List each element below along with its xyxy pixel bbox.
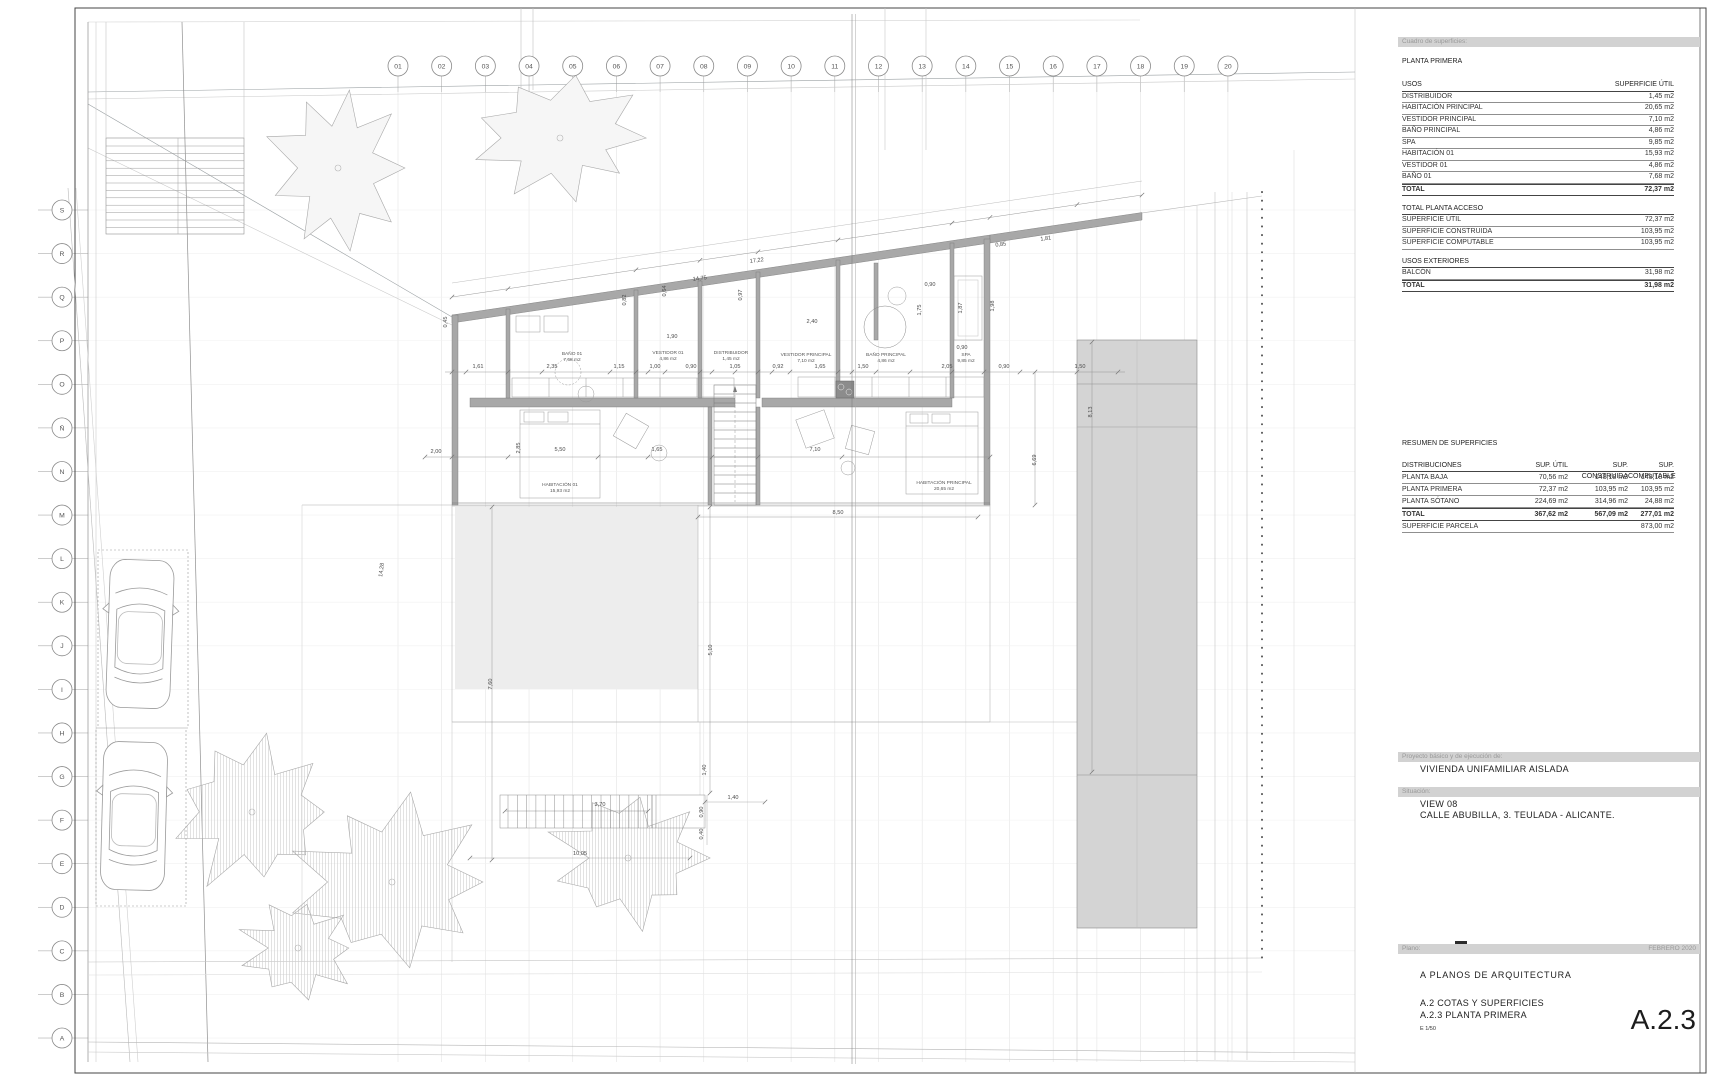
dim-label: 1,50 xyxy=(1075,364,1086,370)
row-label: TOTAL xyxy=(1402,185,1425,196)
room-area: 7,10 m2 xyxy=(797,358,815,364)
grid-row-label: I xyxy=(61,687,63,694)
project-name: VIVIENDA UNIFAMILIAR AISLADA xyxy=(1420,764,1569,774)
dim-label: 8,50 xyxy=(833,510,844,516)
table-row: BAÑO PRINCIPAL4,86 m2 xyxy=(1402,126,1674,138)
grid-column-label: 10 xyxy=(787,63,795,70)
grid-column-label: 06 xyxy=(613,63,621,70)
building-plan: BAÑO 01 7,68 m2 VESTIDOR 01 4,86 m2 DIST… xyxy=(452,213,1142,507)
grid-row-label: Ñ xyxy=(60,423,65,432)
table-cell: 24,88 m2 xyxy=(1628,496,1674,507)
grid-column-label: 20 xyxy=(1224,63,1232,70)
tree-icon xyxy=(476,75,646,202)
dim-label: 1,81 xyxy=(1040,235,1052,242)
table-cell: 72,37 m2 xyxy=(1520,484,1568,495)
room-label: SPA xyxy=(961,352,971,358)
superficie-col-header: SUPERFICIE ÚTIL xyxy=(1615,80,1674,91)
room-label: DISTRIBUIDOR xyxy=(714,350,749,356)
dim-label: 0,45 xyxy=(443,317,449,328)
dim-label: 0,40 xyxy=(699,829,705,840)
table-cell xyxy=(1568,521,1628,532)
dim-label: 10,05 xyxy=(573,851,587,857)
dim-label: 5,50 xyxy=(555,447,566,453)
row-label: VESTIDOR 01 xyxy=(1402,161,1448,172)
dim-label: 0,90 xyxy=(957,345,968,351)
planta-primera-title: PLANTA PRIMERA xyxy=(1402,58,1462,65)
row-value: 7,68 m2 xyxy=(1649,172,1674,183)
acceso-table-title: TOTAL PLANTA ACCESO xyxy=(1402,203,1674,215)
table-row: DISTRIBUIDOR1,45 m2 xyxy=(1402,92,1674,104)
sheet-title: A.2.3 PLANTA PRIMERA xyxy=(1420,1010,1527,1020)
room-label: BAÑO 01 xyxy=(562,350,583,357)
dim-label: 0,90 xyxy=(925,282,936,288)
grid-column-label: 17 xyxy=(1093,63,1101,70)
tree-icon xyxy=(239,904,348,1000)
dim-label: 1,98 xyxy=(990,301,996,312)
table-cell: 367,62 m2 xyxy=(1520,509,1568,520)
row-label: TOTAL xyxy=(1402,281,1425,292)
cuadro-superficies-label: Cuadro de superficies: xyxy=(1402,38,1467,45)
section-cut-line xyxy=(852,14,856,1064)
cuadro-superficies-bar: Cuadro de superficies: xyxy=(1398,37,1700,47)
grid-row-label: J xyxy=(60,643,63,650)
pool-strip xyxy=(1077,206,1197,1062)
row-value: 9,85 m2 xyxy=(1649,138,1674,149)
room-label: VESTIDOR PRINCIPAL xyxy=(781,352,832,358)
dim-label: 0,64 xyxy=(662,286,668,297)
grid-row-label: R xyxy=(60,251,65,258)
balcony-band xyxy=(452,235,990,323)
grid-column-label: 09 xyxy=(744,63,752,70)
row-value: 4,86 m2 xyxy=(1649,126,1674,137)
room-area: 4,86 m2 xyxy=(877,358,895,364)
dim-label: 0,85 xyxy=(995,241,1007,248)
table-row: SUPERFICIE PARCELA873,00 m2 xyxy=(1402,521,1674,533)
plano-date: FEBRERO 2020 xyxy=(1648,944,1696,954)
grid-row-label: D xyxy=(60,905,65,912)
dim-label: 5,10 xyxy=(708,645,714,656)
exteriores-table: USOS EXTERIORES BALCÓN31,98 m2TOTAL31,98… xyxy=(1402,256,1674,292)
grid-column-label: 18 xyxy=(1137,63,1145,70)
scale-label: E 1/50 xyxy=(1420,1026,1436,1032)
dim-label: 2,05 xyxy=(942,364,953,370)
sheet-code: A.2.3 xyxy=(1631,1004,1696,1036)
dim-label: 0,97 xyxy=(738,290,744,301)
dim-label: 2,35 xyxy=(547,364,558,370)
table-row: TOTAL367,62 m2567,09 m2277,01 m2 xyxy=(1402,508,1674,521)
table-cell: 224,69 m2 xyxy=(1520,496,1568,507)
dim-label: 6,69 xyxy=(1032,455,1038,466)
table-cell: 103,95 m2 xyxy=(1628,484,1674,495)
grid-row-label: C xyxy=(60,948,65,955)
row-label: VESTIDOR PRINCIPAL xyxy=(1402,115,1476,126)
dim-label: 8,13 xyxy=(1088,407,1094,418)
grid-row-label: O xyxy=(59,382,64,389)
row-value: 72,37 m2 xyxy=(1644,185,1674,196)
grid-column-label: 03 xyxy=(482,63,490,70)
grid-column-label: 05 xyxy=(569,63,577,70)
grid-row-label: G xyxy=(59,774,64,781)
usos-col-header: USOS xyxy=(1402,80,1422,91)
grid-column-label: 15 xyxy=(1006,63,1014,70)
grid-column-label: 04 xyxy=(525,63,533,70)
dim-label: 1,65 xyxy=(815,364,826,370)
grid-row-label: N xyxy=(60,469,65,476)
parking-area xyxy=(94,550,188,906)
grid-row-label: B xyxy=(60,992,65,999)
table-cell: PLANTA PRIMERA xyxy=(1402,484,1520,495)
table-row: VESTIDOR PRINCIPAL7,10 m2 xyxy=(1402,115,1674,127)
table-row: SPA9,85 m2 xyxy=(1402,138,1674,150)
site-line-1: VIEW 08 xyxy=(1420,799,1458,809)
dim-label: 1,05 xyxy=(730,364,741,370)
grid-column-label: 19 xyxy=(1180,63,1188,70)
table-row: SUPERFICIE COMPUTABLE103,95 m2 xyxy=(1402,238,1674,250)
dim-label: 1,87 xyxy=(958,303,964,314)
usos-table: USOS SUPERFICIE ÚTIL DISTRIBUIDOR1,45 m2… xyxy=(1402,80,1674,196)
room-label: HABITACIÓN 01 xyxy=(542,481,578,488)
grid-column-label: 16 xyxy=(1049,63,1057,70)
grid-row-label: A xyxy=(60,1035,65,1042)
grid-row-label: L xyxy=(60,556,64,563)
grid-row-label: H xyxy=(60,730,65,737)
row-label: HABITACIÓN PRINCIPAL xyxy=(1402,103,1483,114)
row-label: SPA xyxy=(1402,138,1416,149)
series-title: A PLANOS DE ARQUITECTURA xyxy=(1420,970,1572,980)
room-area: 9,85 m2 xyxy=(957,358,975,364)
table-cell: 567,09 m2 xyxy=(1568,509,1628,520)
group-title: A.2 COTAS Y SUPERFICIES xyxy=(1420,998,1544,1008)
interior-staircase xyxy=(714,385,756,505)
dim-label: 1,75 xyxy=(917,305,923,316)
dim-label: 7,10 xyxy=(810,447,821,453)
table-cell: 103,95 m2 xyxy=(1568,484,1628,495)
room-label: HABITACIÓN PRINCIPAL xyxy=(916,479,972,486)
exteriores-table-title: USOS EXTERIORES xyxy=(1402,256,1674,268)
row-value: 7,10 m2 xyxy=(1649,115,1674,126)
plano-bar: Plano: FEBRERO 2020 xyxy=(1398,944,1700,954)
row-label: SUPERFICIE COMPUTABLE xyxy=(1402,238,1494,249)
row-label: HABITACIÓN 01 xyxy=(1402,149,1454,160)
table-cell: 314,96 m2 xyxy=(1568,496,1628,507)
situacion-bar: Situación: xyxy=(1398,787,1700,797)
row-label: BALCÓN xyxy=(1402,268,1431,279)
dim-label: 1,40 xyxy=(728,795,739,801)
dim-label: 2,40 xyxy=(807,319,818,325)
grid-column-label: 02 xyxy=(438,63,446,70)
table-cell: SUPERFICIE PARCELA xyxy=(1402,521,1520,532)
exterior-stair-top-left xyxy=(106,22,244,234)
table-row: HABITACIÓN PRINCIPAL20,65 m2 xyxy=(1402,103,1674,115)
dim-label: 3,70 xyxy=(595,802,606,808)
table-row: TOTAL31,98 m2 xyxy=(1402,280,1674,293)
car-2 xyxy=(94,741,174,891)
table-row: BAÑO 017,68 m2 xyxy=(1402,172,1674,184)
room-area: 4,86 m2 xyxy=(659,356,677,362)
table-cell: 148,18 m2 xyxy=(1628,472,1674,483)
grid-column-label: 08 xyxy=(700,63,708,70)
table-row: PLANTA SÓTANO224,69 m2314,96 m224,88 m2 xyxy=(1402,496,1674,508)
dim-label: 1,15 xyxy=(614,364,625,370)
room-area: 20,65 m2 xyxy=(934,486,954,492)
plano-label: Plano: xyxy=(1402,945,1420,952)
row-value: 31,98 m2 xyxy=(1645,268,1674,279)
grid-row-label: P xyxy=(60,338,65,345)
table-row: PLANTA PRIMERA72,37 m2103,95 m2103,95 m2 xyxy=(1402,484,1674,496)
table-row: HABITACIÓN 0115,93 m2 xyxy=(1402,149,1674,161)
resumen-table: DISTRIBUCIONESSUP. ÚTILSUP. CONSTRUIDASU… xyxy=(1402,460,1674,533)
dim-label: 2,00 xyxy=(431,449,442,455)
table-cell: PLANTA BAJA xyxy=(1402,472,1520,483)
row-value: 31,98 m2 xyxy=(1644,281,1674,292)
table-cell: 873,00 m2 xyxy=(1628,521,1674,532)
table-cell: 277,01 m2 xyxy=(1628,509,1674,520)
furniture xyxy=(512,276,984,498)
row-value: 20,65 m2 xyxy=(1645,103,1674,114)
grid-column-label: 07 xyxy=(656,63,664,70)
proyecto-label: Proyecto básico y de ejecución de: xyxy=(1402,753,1502,760)
table-cell: 70,56 m2 xyxy=(1520,472,1568,483)
grid-row-label: Q xyxy=(59,295,64,302)
room-area: 7,68 m2 xyxy=(563,357,581,363)
room-label: VESTIDOR 01 xyxy=(652,350,684,356)
row-value: 1,45 m2 xyxy=(1649,92,1674,103)
row-label: BAÑO 01 xyxy=(1402,172,1432,183)
row-label: SUPERFICIE ÚTIL xyxy=(1402,215,1461,226)
table-row: SUPERFICIE CONSTRUIDA103,95 m2 xyxy=(1402,227,1674,239)
dim-label: 0,92 xyxy=(773,364,784,370)
dim-label: 0,82 xyxy=(622,295,628,306)
situacion-label: Situación: xyxy=(1402,788,1431,795)
dim-label: 14,28 xyxy=(378,563,386,578)
row-label: BAÑO PRINCIPAL xyxy=(1402,126,1460,137)
acceso-table: TOTAL PLANTA ACCESO SUPERFICIE ÚTIL72,37… xyxy=(1402,203,1674,250)
grid-column-label: 01 xyxy=(394,63,402,70)
grid-column-label: 13 xyxy=(918,63,926,70)
row-value: 4,86 m2 xyxy=(1649,161,1674,172)
dim-label: 1,00 xyxy=(650,364,661,370)
table-cell: 148,18 m2 xyxy=(1568,472,1628,483)
row-value: 103,95 m2 xyxy=(1641,227,1674,238)
terrace xyxy=(452,505,1077,962)
grid-row-label: M xyxy=(59,512,65,519)
grid-column-label: 12 xyxy=(875,63,883,70)
table-row: PLANTA BAJA70,56 m2148,18 m2148,18 m2 xyxy=(1402,472,1674,484)
row-value: 103,95 m2 xyxy=(1641,238,1674,249)
dim-label: 2,85 xyxy=(516,443,522,454)
room-label: BAÑO PRINCIPAL xyxy=(866,351,906,358)
room-area: 15,93 m2 xyxy=(550,488,570,494)
dim-label: 7,60 xyxy=(488,679,494,690)
grid-row-label: S xyxy=(60,207,65,214)
table-row: DISTRIBUCIONESSUP. ÚTILSUP. CONSTRUIDASU… xyxy=(1402,460,1674,472)
grid-column-label: 14 xyxy=(962,63,970,70)
row-label: SUPERFICIE CONSTRUIDA xyxy=(1402,227,1492,238)
row-value: 72,37 m2 xyxy=(1645,215,1674,226)
table-row: TOTAL72,37 m2 xyxy=(1402,184,1674,197)
usos-table-header: USOS SUPERFICIE ÚTIL xyxy=(1402,80,1674,92)
proyecto-bar: Proyecto básico y de ejecución de: xyxy=(1398,752,1700,762)
table-cell xyxy=(1520,521,1568,532)
table-row: BALCÓN31,98 m2 xyxy=(1402,268,1674,280)
dim-label: 1,40 xyxy=(702,765,708,776)
grid-row-label: K xyxy=(60,600,65,607)
table-row: SUPERFICIE ÚTIL72,37 m2 xyxy=(1402,215,1674,227)
drawing-sheet: BAÑO 01 7,68 m2 VESTIDOR 01 4,86 m2 DIST… xyxy=(0,0,1718,1080)
site-line-2: CALLE ABUBILLA, 3. TEULADA - ALICANTE. xyxy=(1420,810,1615,820)
dim-label: 0,90 xyxy=(686,364,697,370)
row-value: 15,93 m2 xyxy=(1645,149,1674,160)
dim-label: 1,61 xyxy=(473,364,484,370)
car-1 xyxy=(99,559,180,710)
table-row: VESTIDOR 014,86 m2 xyxy=(1402,161,1674,173)
table-cell: TOTAL xyxy=(1402,509,1520,520)
dim-label: 0,90 xyxy=(999,364,1010,370)
grid-row-label: E xyxy=(60,861,65,868)
row-label: DISTRIBUIDOR xyxy=(1402,92,1452,103)
dim-label: 17,22 xyxy=(750,257,765,265)
dim-label: 0,90 xyxy=(699,807,705,818)
dim-label: 1,90 xyxy=(667,334,678,340)
room-area: 1,45 m2 xyxy=(722,356,740,362)
table-cell: PLANTA SÓTANO xyxy=(1402,496,1520,507)
resumen-title: RESUMEN DE SUPERFICIES xyxy=(1402,440,1497,447)
dim-label: 1,65 xyxy=(652,447,663,453)
grid-row-label: F xyxy=(60,818,64,825)
dim-label: 1,50 xyxy=(858,364,869,370)
grid-column-label: 11 xyxy=(831,63,838,70)
